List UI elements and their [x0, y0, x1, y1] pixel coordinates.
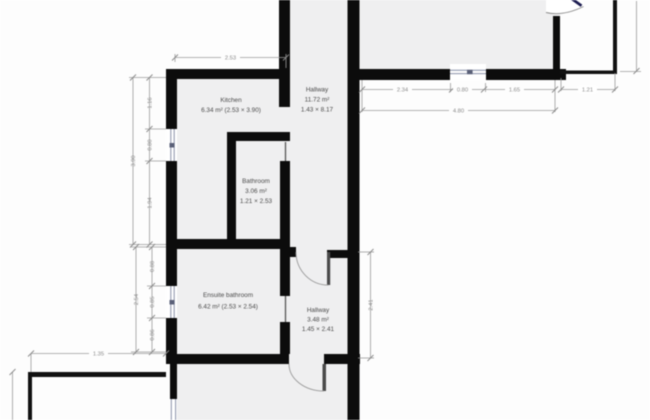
svg-text:0.80: 0.80: [148, 139, 154, 150]
svg-text:11.72 m²: 11.72 m²: [305, 97, 330, 104]
svg-text:Hallway: Hallway: [307, 307, 330, 314]
svg-text:3.48 m²: 3.48 m²: [307, 317, 329, 324]
svg-text:1.21: 1.21: [582, 88, 593, 94]
svg-text:3.06 m²: 3.06 m²: [245, 188, 267, 195]
svg-text:2.54: 2.54: [134, 293, 140, 305]
svg-text:6.34 m² (2.53 × 3.90): 6.34 m² (2.53 × 3.90): [201, 107, 261, 114]
svg-text:2.53: 2.53: [225, 56, 236, 62]
svg-text:0.85: 0.85: [150, 296, 156, 307]
svg-text:1.43 × 8.17: 1.43 × 8.17: [301, 107, 334, 114]
svg-text:Bathroom: Bathroom: [242, 178, 270, 185]
svg-text:1.21 × 2.53: 1.21 × 2.53: [240, 198, 273, 205]
svg-text:0.88: 0.88: [150, 261, 156, 272]
svg-text:1.16: 1.16: [148, 97, 154, 108]
svg-text:1.65: 1.65: [509, 88, 520, 94]
svg-text:4.80: 4.80: [453, 109, 464, 115]
svg-text:Kitchen: Kitchen: [220, 97, 242, 104]
svg-text:6.42 m² (2.53 × 2.54): 6.42 m² (2.53 × 2.54): [198, 304, 258, 311]
svg-text:0.80: 0.80: [457, 88, 468, 94]
svg-text:3.90: 3.90: [131, 155, 137, 166]
svg-text:Ensuite bathroom: Ensuite bathroom: [203, 292, 253, 299]
svg-text:1.45 × 2.41: 1.45 × 2.41: [302, 326, 335, 333]
svg-text:2.34: 2.34: [397, 88, 409, 94]
svg-text:0.86: 0.86: [150, 329, 156, 340]
svg-text:Hallway: Hallway: [306, 87, 329, 94]
svg-text:2.41: 2.41: [369, 299, 375, 310]
svg-text:1.94: 1.94: [148, 197, 154, 209]
svg-text:1.35: 1.35: [93, 352, 104, 358]
